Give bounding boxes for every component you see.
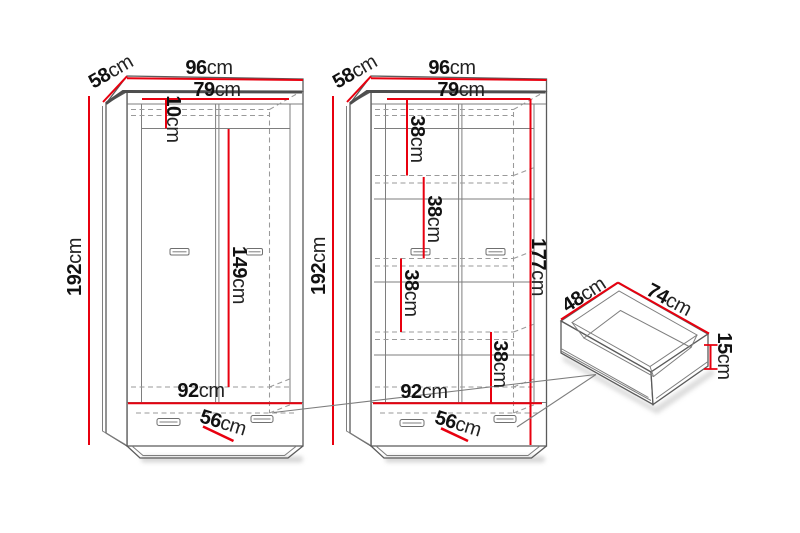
dim-label-left-inner-bottom: 92cm bbox=[177, 381, 224, 401]
dim-label-right-shelf-gap-1: 38cm bbox=[407, 115, 427, 162]
diagram-canvas: 58cm 96cm 79cm 10cm 192cm 149cm 92cm 56c… bbox=[0, 0, 800, 533]
plinth-inner-line bbox=[376, 446, 540, 456]
wardrobe-diagram bbox=[0, 0, 800, 533]
dim-label-left-top-clearance: 10cm bbox=[163, 95, 183, 142]
dim-label-right-shelf-gap-2: 38cm bbox=[424, 195, 444, 242]
dim-label-right-height: 192cm bbox=[309, 237, 329, 295]
dim-label-left-hanging-height: 149cm bbox=[229, 246, 249, 304]
plinth-inner-line bbox=[132, 446, 297, 456]
side-panel bbox=[350, 92, 371, 447]
dim-label-left-width: 96cm bbox=[185, 58, 232, 78]
side-panel bbox=[106, 92, 127, 447]
dim-label-left-inner-width: 79cm bbox=[193, 80, 240, 100]
dim-label-right-inner-height: 177cm bbox=[528, 238, 548, 296]
dim-label-drawer-height: 15cm bbox=[714, 332, 734, 379]
dim-label-right-shelf-gap-3: 38cm bbox=[401, 269, 421, 316]
dim-label-right-width: 96cm bbox=[428, 58, 475, 78]
dim-label-right-inner-bottom: 92cm bbox=[400, 382, 447, 402]
left-wardrobe-shadow bbox=[141, 456, 303, 463]
dim-label-right-shelf-gap-4: 38cm bbox=[490, 340, 510, 387]
dim-label-right-inner-width: 79cm bbox=[437, 80, 484, 100]
dim-label-left-height: 192cm bbox=[65, 238, 85, 296]
right-wardrobe-shadow bbox=[385, 456, 545, 463]
